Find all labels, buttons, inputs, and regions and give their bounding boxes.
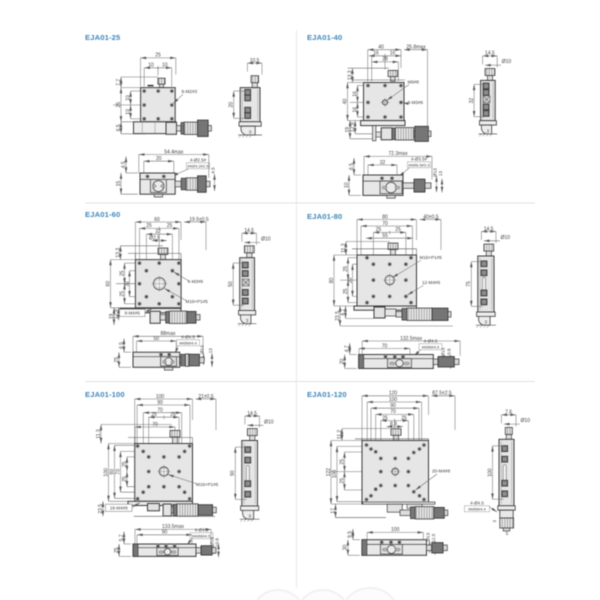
svg-text:7.6: 7.6 — [505, 410, 512, 416]
svg-text:17: 17 — [330, 508, 336, 514]
svg-text:11.2: 11.2 — [337, 430, 343, 440]
svg-text:25: 25 — [376, 227, 382, 233]
svg-text:80: 80 — [382, 214, 388, 220]
svg-text:25: 25 — [122, 476, 128, 482]
svg-text:4.7: 4.7 — [345, 345, 351, 352]
svg-text:Ø13: Ø13 — [433, 168, 438, 177]
svg-text:30: 30 — [343, 545, 349, 551]
svg-text:8-M3#6: 8-M3#6 — [408, 100, 424, 105]
svg-text:M16×P1#5: M16×P1#5 — [196, 482, 219, 487]
svg-text:4.7: 4.7 — [340, 309, 346, 316]
svg-text:25: 25 — [343, 288, 349, 294]
svg-text:Ø10: Ø10 — [502, 59, 512, 65]
svg-text:16: 16 — [373, 51, 379, 57]
svg-text:25: 25 — [116, 102, 122, 108]
svg-text:##Ø8#4.4: ##Ø8#4.4 — [468, 507, 486, 512]
svg-text:13: 13 — [208, 348, 213, 354]
svg-text:4-Ø4.5: 4-Ø4.5 — [424, 339, 438, 344]
svg-text:25: 25 — [401, 415, 407, 421]
svg-text:10: 10 — [162, 63, 168, 69]
svg-text:72.3max: 72.3max — [388, 151, 408, 157]
svg-text:40: 40 — [342, 99, 348, 105]
svg-text:40: 40 — [378, 45, 384, 51]
svg-text:25: 25 — [339, 478, 345, 484]
svg-text:Ø10: Ø10 — [501, 235, 511, 241]
svg-text:23.5: 23.5 — [98, 504, 104, 514]
svg-text:21±0.5: 21±0.5 — [198, 394, 213, 400]
svg-text:14.5: 14.5 — [244, 228, 254, 234]
svg-text:14.5: 14.5 — [485, 51, 495, 57]
svg-text:25: 25 — [114, 357, 120, 363]
svg-text:32: 32 — [380, 160, 386, 166]
svg-text:50: 50 — [228, 281, 234, 287]
svg-text:6.5: 6.5 — [116, 124, 122, 131]
svg-text:25: 25 — [155, 53, 161, 59]
svg-text:5: 5 — [506, 531, 509, 536]
svg-text:Ø13: Ø13 — [200, 345, 205, 354]
svg-text:25: 25 — [339, 459, 345, 465]
svg-text:25: 25 — [395, 227, 401, 233]
svg-text:4-Ø4.5: 4-Ø4.5 — [181, 335, 195, 340]
svg-text:8-M4#6: 8-M4#6 — [125, 311, 141, 316]
svg-text:6.5: 6.5 — [119, 342, 125, 349]
svg-text:8-M2#3: 8-M2#3 — [182, 89, 198, 94]
svg-text:70: 70 — [382, 221, 388, 227]
svg-text:19.5±0.5: 19.5±0.5 — [189, 217, 209, 223]
svg-text:80: 80 — [329, 278, 335, 284]
svg-text:M16×P1#5: M16×P1#5 — [420, 255, 443, 260]
svg-text:25: 25 — [146, 223, 152, 229]
svg-text:20-M4#8: 20-M4#8 — [432, 469, 451, 474]
svg-text:##Ø8#4.5: ##Ø8#4.5 — [422, 345, 440, 350]
svg-text:25: 25 — [151, 412, 157, 418]
svg-text:25: 25 — [167, 223, 173, 229]
svg-text:14.5: 14.5 — [484, 226, 494, 232]
svg-text:25: 25 — [119, 270, 125, 276]
svg-text:13.3: 13.3 — [115, 248, 121, 258]
svg-text:16: 16 — [352, 107, 358, 113]
svg-text:70: 70 — [157, 408, 163, 414]
svg-text:12.9: 12.9 — [113, 309, 119, 319]
svg-text:25: 25 — [170, 412, 176, 418]
svg-text:13: 13 — [438, 171, 443, 177]
svg-text:25: 25 — [382, 415, 388, 421]
svg-text:32: 32 — [155, 229, 161, 235]
svg-text:20: 20 — [340, 359, 346, 365]
svg-text:10: 10 — [125, 95, 131, 101]
svg-text:Ø2.5: Ø2.5 — [149, 235, 160, 241]
svg-text:132.5max: 132.5max — [400, 336, 422, 342]
svg-text:88max: 88max — [160, 331, 176, 337]
svg-text:7.7: 7.7 — [116, 79, 122, 86]
svg-text:15: 15 — [116, 181, 122, 187]
svg-text:EJA01-80: EJA01-80 — [307, 212, 342, 221]
svg-text:11.3: 11.3 — [341, 243, 347, 253]
svg-text:12-M4#6: 12-M4#6 — [422, 280, 441, 285]
svg-text:14.5: 14.5 — [247, 411, 257, 417]
svg-text:20: 20 — [229, 102, 235, 108]
svg-text:100: 100 — [332, 470, 338, 479]
svg-text:5.7: 5.7 — [119, 534, 125, 541]
svg-text:##Ø6.5#3.3: ##Ø6.5#3.3 — [409, 163, 431, 168]
svg-text:##Ø4.2#2.5: ##Ø4.2#2.5 — [188, 164, 210, 169]
svg-text:25: 25 — [114, 547, 120, 553]
svg-text:90: 90 — [230, 470, 236, 476]
svg-text:11.3: 11.3 — [96, 429, 102, 439]
svg-text:8.8: 8.8 — [390, 421, 397, 427]
svg-text:EJA01-25: EJA01-25 — [85, 33, 121, 42]
svg-text:120: 120 — [389, 391, 398, 397]
svg-text:40±0.5: 40±0.5 — [423, 214, 438, 220]
svg-text:Ø10: Ø10 — [521, 418, 531, 424]
svg-text:4.5: 4.5 — [121, 161, 127, 168]
svg-text:4-Ø3.5#: 4-Ø3.5# — [411, 157, 428, 162]
svg-text:60: 60 — [105, 281, 111, 287]
svg-text:75: 75 — [466, 281, 472, 287]
svg-text:70: 70 — [115, 469, 121, 475]
svg-text:4-Ø4.5: 4-Ø4.5 — [470, 501, 484, 506]
svg-text:100: 100 — [389, 397, 398, 403]
svg-text:4-M3#6: 4-M3#6 — [188, 279, 204, 284]
svg-text:70: 70 — [382, 343, 388, 349]
svg-text:EJA01-120: EJA01-120 — [307, 390, 347, 399]
svg-text:70: 70 — [390, 409, 396, 415]
svg-text:4-Ø4.5: 4-Ø4.5 — [195, 528, 209, 533]
svg-text:10: 10 — [125, 109, 131, 115]
svg-text:55: 55 — [382, 233, 388, 239]
svg-text:EJA01-100: EJA01-100 — [85, 390, 125, 399]
svg-text:90: 90 — [390, 403, 396, 409]
svg-text:Ø10: Ø10 — [264, 419, 274, 425]
svg-text:25: 25 — [343, 266, 349, 272]
svg-text:M16×P1#5: M16×P1#5 — [186, 299, 209, 304]
svg-text:70: 70 — [152, 422, 158, 428]
svg-text:4-Ø2.5#: 4-Ø2.5# — [190, 158, 207, 163]
svg-text:12.9: 12.9 — [350, 122, 356, 132]
svg-text:87.5±2.5: 87.5±2.5 — [432, 391, 452, 397]
svg-text:10.5: 10.5 — [250, 58, 260, 64]
svg-text:18-M4#8: 18-M4#8 — [110, 505, 128, 510]
svg-text:54.4max: 54.4max — [164, 149, 184, 155]
svg-text:9.5: 9.5 — [348, 531, 354, 538]
svg-text:90: 90 — [162, 530, 168, 536]
svg-text:16: 16 — [390, 51, 396, 57]
svg-text:10: 10 — [148, 63, 154, 69]
svg-text:50: 50 — [154, 336, 160, 342]
svg-text:32: 32 — [469, 98, 475, 104]
svg-text:90: 90 — [157, 400, 163, 406]
svg-text:100: 100 — [391, 527, 400, 533]
svg-text:25.8max: 25.8max — [406, 45, 426, 51]
svg-text:25: 25 — [119, 291, 125, 297]
svg-text:60: 60 — [154, 217, 160, 223]
svg-text:##Ø8#4.5: ##Ø8#4.5 — [193, 534, 211, 539]
svg-text:4.5: 4.5 — [211, 167, 216, 174]
svg-text:Ø10: Ø10 — [261, 237, 271, 243]
svg-text:EJA01-40: EJA01-40 — [307, 33, 342, 42]
svg-text:6.5: 6.5 — [349, 163, 355, 170]
svg-text:##Ø8#4.4: ##Ø8#4.4 — [179, 341, 197, 346]
svg-text:EJA01-60: EJA01-60 — [85, 210, 120, 219]
svg-text:20: 20 — [156, 156, 162, 162]
svg-text:25: 25 — [122, 461, 128, 467]
svg-text:M6#8: M6#8 — [408, 80, 420, 85]
svg-text:13.3: 13.3 — [347, 70, 353, 80]
svg-text:Ø13: Ø13 — [441, 347, 446, 356]
svg-text:16: 16 — [352, 91, 358, 97]
svg-text:100: 100 — [487, 468, 493, 477]
svg-text:3: 3 — [492, 520, 497, 523]
svg-text:10: 10 — [344, 182, 350, 188]
